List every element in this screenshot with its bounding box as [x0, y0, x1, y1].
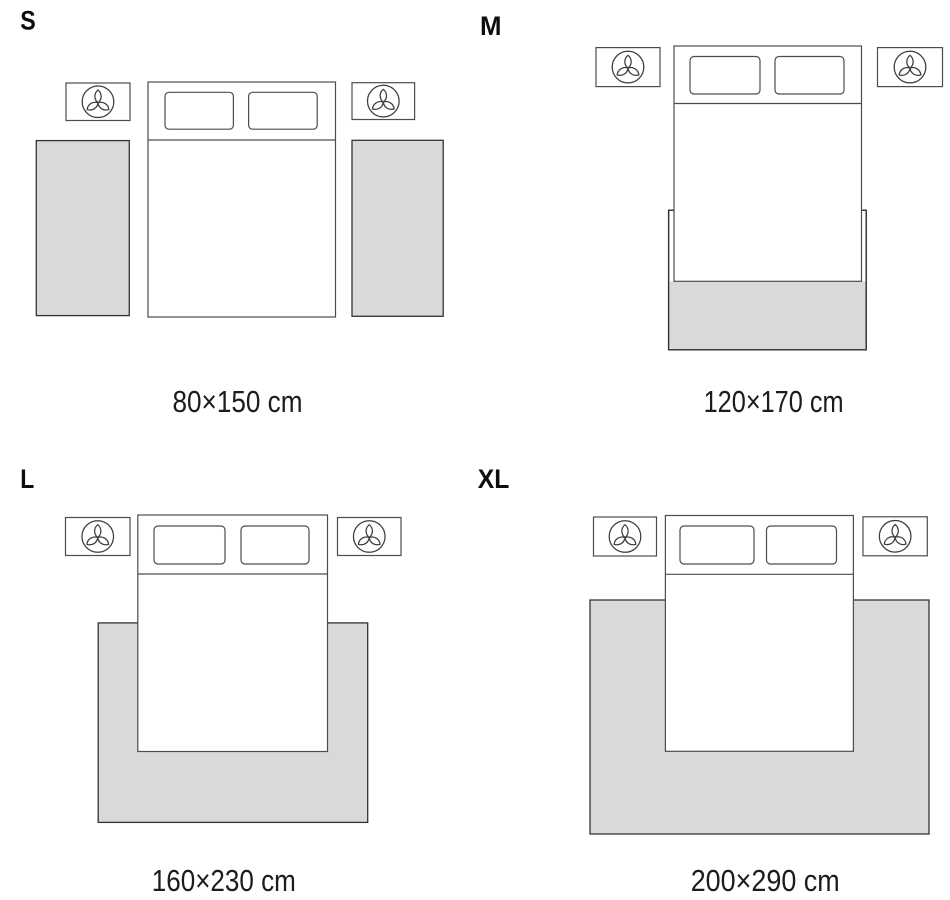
svg-text:S: S — [20, 5, 36, 35]
svg-text:80×150 cm: 80×150 cm — [173, 384, 303, 419]
svg-text:120×170 cm: 120×170 cm — [704, 384, 844, 419]
svg-text:L: L — [20, 464, 34, 494]
svg-text:XL: XL — [478, 464, 510, 494]
svg-text:200×290 cm: 200×290 cm — [691, 863, 840, 898]
svg-text:M: M — [480, 11, 502, 41]
svg-text:160×230 cm: 160×230 cm — [152, 863, 296, 898]
